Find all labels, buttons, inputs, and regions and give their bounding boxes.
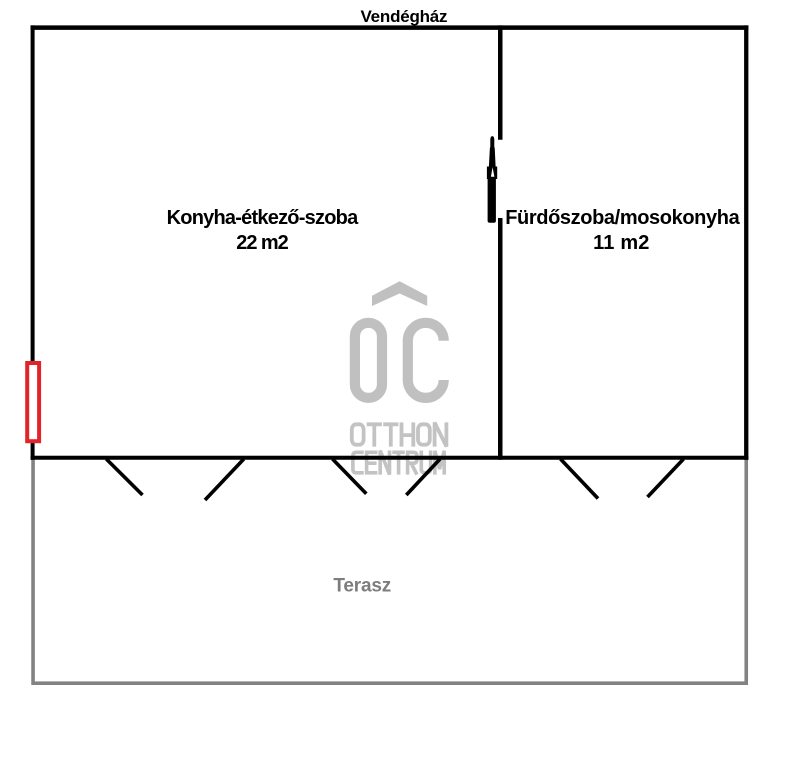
svg-text:Fürdőszoba/mosokonyha: Fürdőszoba/mosokonyha	[505, 207, 740, 229]
svg-text:Vendégház: Vendégház	[361, 7, 448, 26]
svg-text:Terasz: Terasz	[333, 576, 391, 597]
svg-text:22 m2: 22 m2	[236, 232, 288, 254]
svg-text:Konyha-étkező-szoba: Konyha-étkező-szoba	[167, 207, 359, 229]
svg-text:11 m2: 11 m2	[593, 232, 649, 254]
